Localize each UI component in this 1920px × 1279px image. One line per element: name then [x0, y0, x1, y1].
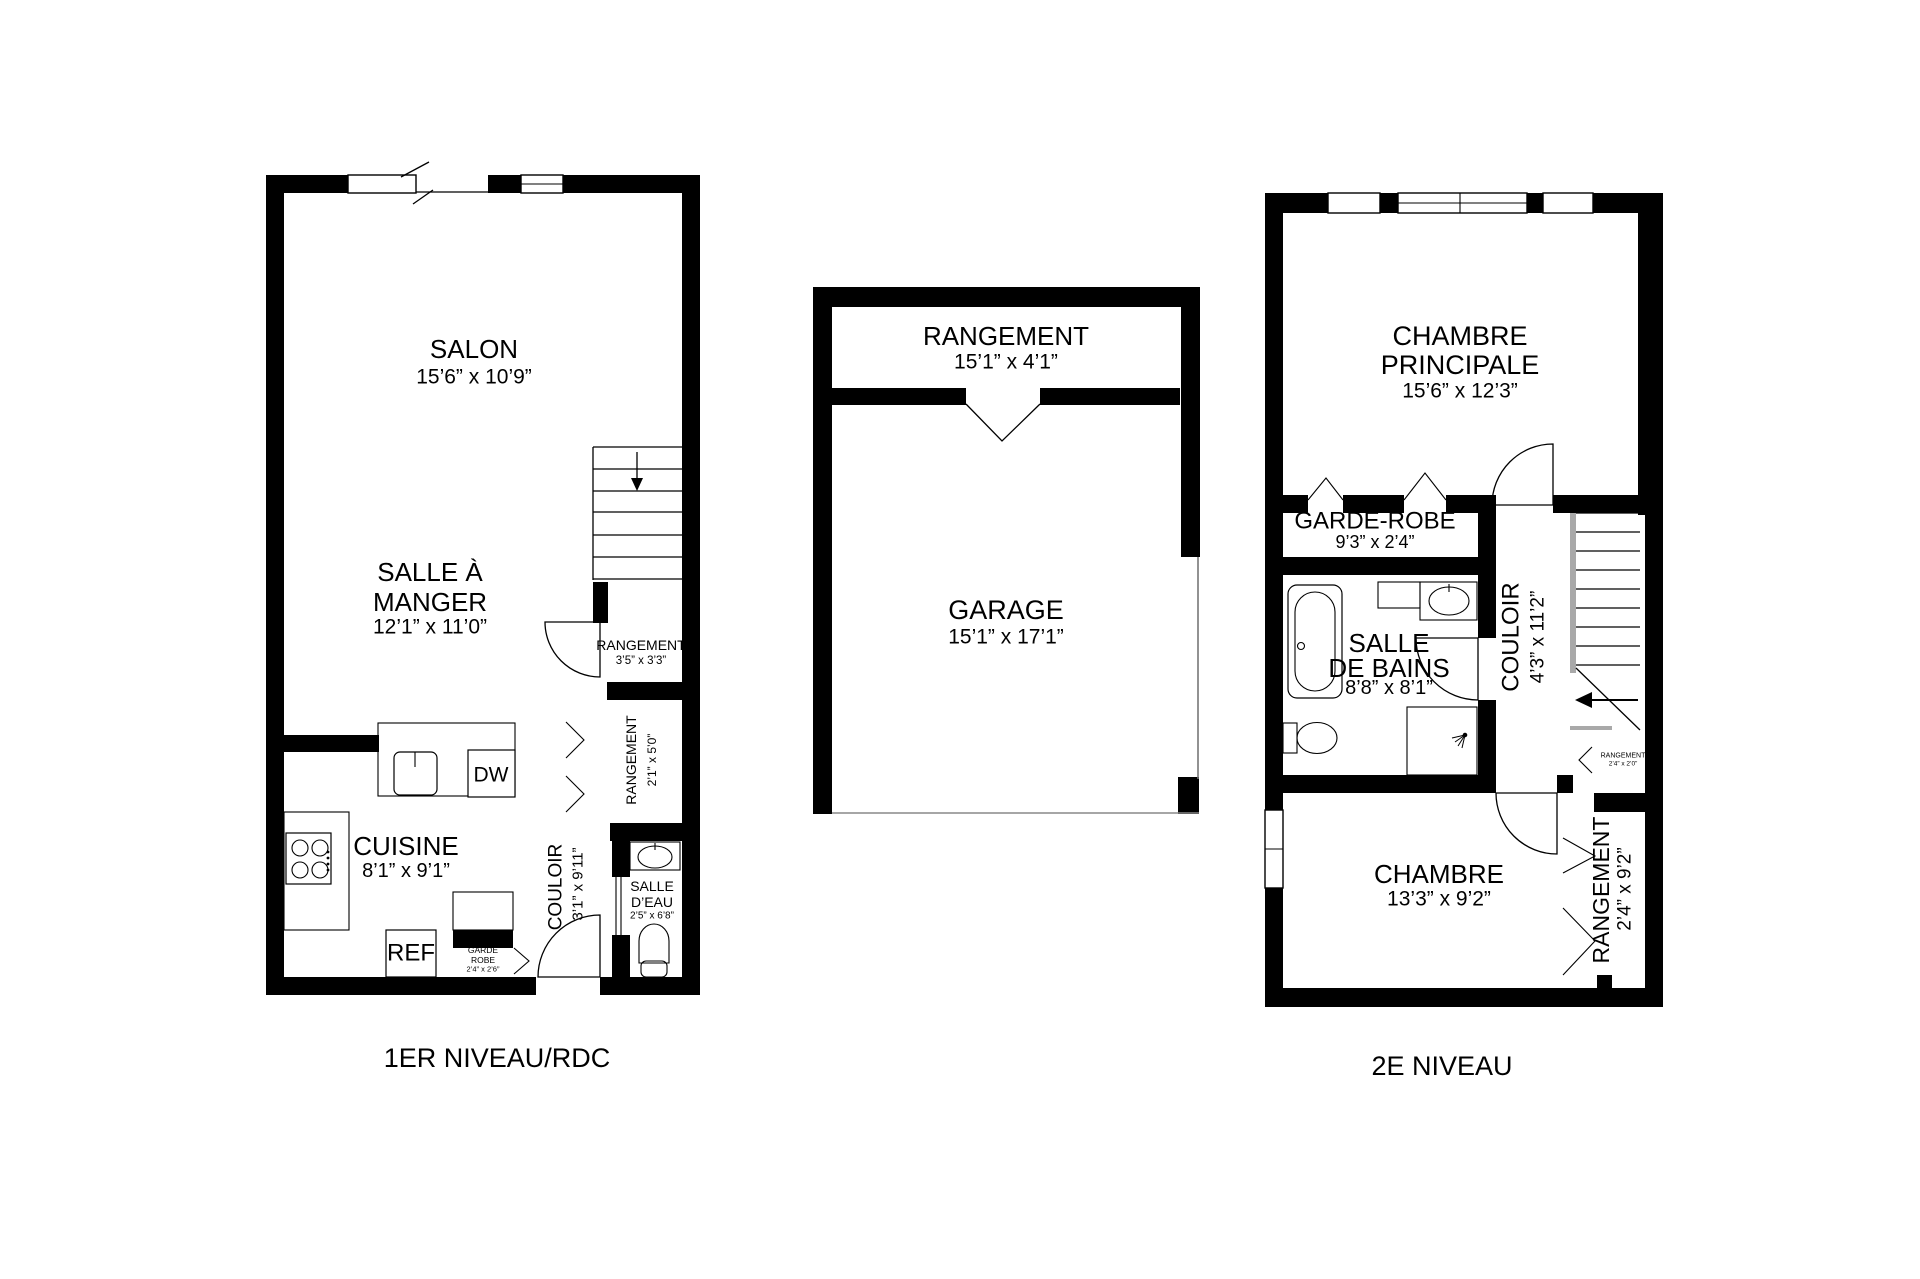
room-dims-chambre-principale: 15’6” x 12’3” [1402, 380, 1518, 403]
wall-segment [600, 977, 700, 995]
room-dims-rangement-understairs2: 2’4” x 2’0” [1609, 761, 1638, 768]
wall-segment [266, 175, 348, 193]
door-swing-rangement [545, 622, 600, 677]
room-label-rangement-hall: RANGEMENT [623, 715, 639, 805]
wall-segment [1380, 193, 1398, 213]
stair-arrow-head [631, 478, 643, 491]
floor1-doors [514, 622, 621, 977]
window [348, 175, 416, 193]
wall-segment [1181, 287, 1200, 557]
wall-segment [813, 287, 1200, 307]
floor2-stairs [1570, 513, 1640, 730]
room-label-rangement-garage: RANGEMENT [923, 321, 1089, 351]
wall-segment [612, 841, 630, 877]
window [1543, 193, 1593, 213]
floor1-stairs [593, 447, 682, 580]
floorplan-document: SALON 15’6” x 10’9” SALLE À MANGER 12’1”… [0, 0, 1920, 1279]
stair-arrow-head [1575, 692, 1592, 708]
wall-segment [1638, 193, 1663, 515]
wall-segment [1265, 988, 1663, 1007]
room-dims-rangement-hall: 2’1” x 5’0” [645, 734, 659, 787]
stove-knob [327, 857, 330, 860]
stair-landing-line [1570, 726, 1612, 730]
toilet-tank [1283, 723, 1297, 753]
floor1-plan: SALON 15’6” x 10’9” SALLE À MANGER 12’1”… [266, 162, 700, 1073]
door-swing-couloir-top [1492, 444, 1553, 505]
bifold-door-chevron [1579, 747, 1592, 773]
bifold-door-chevron [1308, 478, 1343, 500]
wall-segment [1478, 495, 1496, 638]
rangement-door-marker [966, 404, 1040, 441]
floor2-title: 2E NIVEAU [1371, 1051, 1512, 1081]
room-label-rangement-understairs: RANGEMENT [596, 637, 686, 653]
room-label-garde-robe2: GARDE-ROBE [1294, 508, 1455, 535]
room-label-garde-robe: GARDE [468, 945, 499, 955]
wall-segment [1265, 775, 1496, 793]
wall-segment [1040, 388, 1180, 405]
room-dims-rangement-chambre: 2’4” x 9’2” [1615, 847, 1636, 930]
window [1328, 193, 1380, 213]
toilet-bowl [639, 924, 669, 963]
closet-box [453, 892, 513, 930]
room-dims-chambre: 13’3” x 9’2” [1387, 888, 1491, 911]
floor1-title: 1ER NIVEAU/RDC [384, 1043, 611, 1073]
toilet-bowl [1297, 723, 1337, 754]
room-label-chambre: CHAMBRE [1374, 859, 1504, 889]
wall-segment [266, 175, 284, 995]
wall-segment [1553, 495, 1645, 513]
appliance-label-ref: REF [387, 940, 435, 967]
floor1-labels: SALON 15’6” x 10’9” SALLE À MANGER 12’1”… [353, 334, 686, 1073]
room-dims-garde-robe: 2’4” x 2’6” [467, 965, 500, 974]
garage-labels: RANGEMENT 15’1” x 4’1” GARAGE 15’1” x 17… [923, 321, 1089, 649]
room-label-garage: GARAGE [948, 595, 1064, 625]
room-label-salle-deau: SALLE [630, 878, 674, 894]
bifold-door-chevron [566, 722, 584, 758]
room-label-salon: SALON [430, 334, 518, 364]
wall-segment [1597, 975, 1612, 988]
room-dims-salle-de-bains: 8’8” x 8’1” [1345, 677, 1433, 699]
room-label-couloir: COULOIR [546, 844, 567, 931]
room-dims-couloir: 3’1” x 9’11” [570, 847, 587, 920]
room-dims-salle-deau: 2’5” x 6’8” [630, 911, 674, 922]
garage-plan: RANGEMENT 15’1” x 4’1” GARAGE 15’1” x 17… [813, 287, 1200, 814]
wall-segment [612, 935, 630, 977]
door-swing-chambre [1496, 793, 1557, 854]
room-dims-garage: 15’1” x 17’1” [948, 626, 1064, 649]
room-label-garde-robe: ROBE [471, 955, 495, 965]
wall-segment [813, 287, 832, 814]
wall-segment [1557, 775, 1573, 793]
wall-segment [832, 388, 966, 405]
room-label-cuisine: CUISINE [353, 831, 458, 861]
wall-segment [1527, 193, 1543, 213]
room-dims-rangement-understairs: 3’5” x 3’3” [616, 655, 667, 667]
stove-knob [327, 851, 330, 854]
wall-segment [488, 175, 521, 193]
room-label-chambre-principale: CHAMBRE [1392, 321, 1527, 351]
wall-segment [610, 823, 682, 841]
room-dims-rangement-garage: 15’1” x 4’1” [954, 351, 1058, 374]
room-dims-salon: 15’6” x 10’9” [416, 366, 532, 389]
vanity-counter [1378, 582, 1420, 608]
room-label-rangement-understairs2: RANGEMENT [1601, 753, 1646, 760]
wall-segment [682, 175, 700, 995]
wall-segment [563, 175, 700, 193]
wall-segment [1645, 515, 1663, 1007]
wall-segment [1265, 193, 1328, 213]
bifold-door-chevron [566, 776, 584, 812]
stove-knob [327, 869, 330, 872]
floorplan-svg: SALON 15’6” x 10’9” SALLE À MANGER 12’1”… [0, 0, 1920, 1279]
wall-segment [266, 735, 379, 752]
stove-knob [327, 863, 330, 866]
room-label-chambre-principale: PRINCIPALE [1381, 350, 1540, 380]
stair-stringer [1570, 513, 1576, 673]
room-label-salle-deau: D’EAU [631, 894, 673, 910]
room-dims-garde-robe2: 9’3” x 2’4” [1335, 532, 1414, 552]
wall-segment [266, 977, 536, 995]
shower-head-icon [1452, 733, 1467, 748]
room-label-salle-a-manger: MANGER [373, 587, 487, 617]
room-label-rangement-chambre: RANGEMENT [1588, 817, 1614, 964]
floor1-windows [348, 162, 563, 204]
room-dims-couloir2: 4’3” x 11’2” [1528, 591, 1549, 684]
wall-segment [1265, 193, 1283, 810]
wall-segment [1594, 793, 1645, 812]
bifold-door-chevron [1404, 473, 1446, 500]
wall-segment [607, 682, 683, 700]
room-dims-cuisine: 8’1” x 9’1” [362, 860, 450, 882]
wall-segment [1178, 777, 1199, 814]
shower [1407, 707, 1477, 775]
bifold-door-chevron [514, 948, 529, 974]
wall-segment [1265, 557, 1478, 575]
room-dims-salle-a-manger: 12’1” x 11’0” [373, 616, 487, 639]
floor2-plan: CHAMBRE PRINCIPALE 15’6” x 12’3” GARDE-R… [1265, 193, 1663, 1081]
room-label-salle-a-manger: SALLE À [377, 557, 483, 587]
room-label-couloir2: COULOIR [1498, 582, 1525, 691]
appliance-label-dw: DW [474, 764, 509, 787]
wall-segment [593, 582, 608, 623]
